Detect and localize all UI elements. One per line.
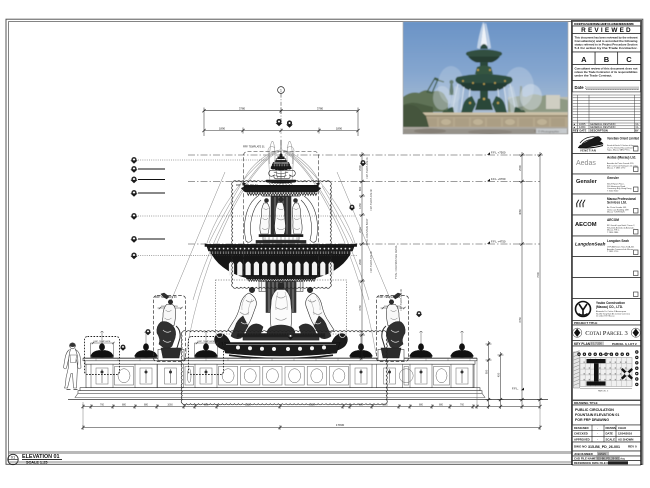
svg-text:880: 880 <box>439 403 444 406</box>
svg-text:3780: 3780 <box>239 107 246 111</box>
svg-text:FRP. TEMPLATE 03: FRP. TEMPLATE 03 <box>379 296 401 299</box>
svg-text:F.F.L +7500: F.F.L +7500 <box>491 150 506 154</box>
svg-text:DATE: DATE <box>580 128 587 132</box>
svg-text:-: - <box>597 432 598 436</box>
svg-text:880: 880 <box>204 403 209 406</box>
svg-text:PROJECT TITLE: PROJECT TITLE <box>574 321 597 325</box>
svg-text:VENETIAN: VENETIAN <box>580 149 596 153</box>
svg-text:F.F.L +6760: F.F.L +6760 <box>491 177 506 181</box>
svg-text:ELEVATION 01: ELEVATION 01 <box>22 454 60 460</box>
svg-text:CHAO: CHAO <box>618 426 627 430</box>
svg-text:12/04: 12/04 <box>579 125 586 129</box>
svg-text:COTAI PARCEL 3: COTAI PARCEL 3 <box>585 330 628 337</box>
svg-text:890: 890 <box>358 186 362 191</box>
svg-text:1890: 1890 <box>219 126 226 130</box>
svg-text:4750: 4750 <box>518 317 522 323</box>
svg-text:1250: 1250 <box>358 203 362 209</box>
svg-text:KEY PLAN: KEY PLAN <box>574 342 591 346</box>
svg-text:880: 880 <box>419 403 424 406</box>
svg-text:DO NOT SCALE DRAWING. VERIFY A: DO NOT SCALE DRAWING. VERIFY ALL DIMENSI… <box>574 22 634 26</box>
svg-text:TYPE. FOUNTAIN SEE DETAIL: TYPE. FOUNTAIN SEE DETAIL <box>395 244 398 279</box>
svg-text:2520: 2520 <box>309 403 315 406</box>
svg-text:PARCEL 3, LOT 2: PARCEL 3, LOT 2 <box>612 342 637 346</box>
svg-text:REV: REV <box>573 128 579 132</box>
svg-text:4060: 4060 <box>518 209 522 215</box>
svg-text:760: 760 <box>100 403 105 406</box>
svg-text:950: 950 <box>485 369 489 374</box>
svg-text:2520: 2520 <box>245 403 251 406</box>
svg-text:2590: 2590 <box>518 165 522 171</box>
svg-text:F.F.L +4750: F.F.L +4750 <box>491 239 506 243</box>
svg-text:AECOM: AECOM <box>575 222 597 228</box>
svg-text:Date :: Date : <box>575 85 587 90</box>
svg-text:PARCEL 3: PARCEL 3 <box>598 389 609 392</box>
svg-text:FRP. TEMPLATE 03: FRP. TEMPLATE 03 <box>400 289 403 311</box>
svg-text:A: A <box>581 55 587 64</box>
svg-text:F.F.L.: F.F.L. <box>512 386 519 390</box>
svg-text:315-B6_PD_26-001: 315-B6_PD_26-001 <box>588 445 620 449</box>
svg-text:FRP. TEMPLATE 02: FRP. TEMPLATE 02 <box>370 189 373 211</box>
svg-text:SCALE: SCALE <box>606 437 616 441</box>
svg-text:CL: CL <box>636 125 640 129</box>
svg-text:FRP. TEMPLATE 01: FRP. TEMPLATE 01 <box>366 157 369 179</box>
svg-text:S 1:7,500: S 1:7,500 <box>591 342 603 346</box>
svg-text:GENERAL REVISION: GENERAL REVISION <box>590 125 616 129</box>
svg-text:2990: 2990 <box>358 259 362 265</box>
svg-text:2300: 2300 <box>358 344 362 350</box>
svg-text:Langdon Seah: Langdon Seah <box>607 239 629 243</box>
svg-text:FRP. TEMPLATE 01: FRP. TEMPLATE 01 <box>243 146 265 149</box>
svg-text:3780: 3780 <box>317 107 324 111</box>
svg-text:DRAWN: DRAWN <box>606 426 617 430</box>
svg-text:© Photographie: © Photographie <box>538 129 559 133</box>
svg-text:DESCRIPTION: DESCRIPTION <box>590 128 608 132</box>
svg-text:DESIGNED: DESIGNED <box>574 426 589 430</box>
svg-text:17830: 17830 <box>336 423 345 427</box>
svg-text:BY: BY <box>635 128 639 132</box>
svg-text:FRP. TEMPLATE: FRP. TEMPLATE <box>198 340 215 343</box>
svg-text:Venetian Orient Limited: Venetian Orient Limited <box>607 137 639 141</box>
svg-text:880: 880 <box>122 403 127 406</box>
svg-text:880: 880 <box>144 403 149 406</box>
svg-text:12/04/2016: 12/04/2016 <box>618 432 632 436</box>
svg-text:CHECKED: CHECKED <box>574 432 588 436</box>
svg-text:FRP. TEMPLATE 02: FRP. TEMPLATE 02 <box>370 251 373 273</box>
svg-text:This document has been reviewe: This document has been reviewed by the r… <box>575 36 639 51</box>
svg-text:-: - <box>597 426 598 430</box>
svg-text:1060: 1060 <box>167 403 173 406</box>
svg-text:7500: 7500 <box>536 272 540 278</box>
svg-text:315-B6_PD_26-001.dwg: 315-B6_PD_26-001.dwg <box>597 456 626 460</box>
svg-text:SCALE 1:25: SCALE 1:25 <box>26 460 48 464</box>
svg-text:1060: 1060 <box>382 403 388 406</box>
svg-text:APPROVED: APPROVED <box>574 437 590 441</box>
svg-text:Aedas (Macau) Ltd.: Aedas (Macau) Ltd. <box>607 156 636 160</box>
svg-text:760: 760 <box>460 403 465 406</box>
svg-text:Aedas: Aedas <box>576 160 596 167</box>
svg-text:4750: 4750 <box>358 305 362 311</box>
svg-text:TYPE. FOUNTAIN BODY: TYPE. FOUNTAIN BODY <box>366 218 369 245</box>
svg-text:Gensler: Gensler <box>607 176 620 180</box>
svg-text:450: 450 <box>497 372 501 377</box>
svg-text:01: 01 <box>11 455 16 460</box>
svg-text:880: 880 <box>359 403 364 406</box>
svg-text:FRP. TEMPLATE: FRP. TEMPLATE <box>94 340 111 343</box>
svg-text:FRP. TEMPLATE 03: FRP. TEMPLATE 03 <box>155 296 177 299</box>
svg-text:31515: 31515 <box>598 452 606 456</box>
svg-text:LangdonSeah: LangdonSeah <box>575 242 606 247</box>
svg-text:JOB NUMBER: JOB NUMBER <box>574 452 593 456</box>
svg-text:AECOM: AECOM <box>607 218 619 222</box>
svg-text:-: - <box>597 437 598 441</box>
svg-text:C: C <box>626 55 632 64</box>
svg-text:2010: 2010 <box>358 227 362 233</box>
svg-text:REV 0: REV 0 <box>628 445 637 449</box>
svg-text:CAD FILE NAME: CAD FILE NAME <box>574 457 596 461</box>
svg-text:2590: 2590 <box>358 165 362 171</box>
svg-text:1: 1 <box>280 88 282 92</box>
svg-text:B: B <box>604 55 610 64</box>
svg-text:Services Ltd.: Services Ltd. <box>607 201 627 205</box>
svg-text:AS SHOWN: AS SHOWN <box>618 437 633 441</box>
svg-text:Gensler: Gensler <box>576 179 598 185</box>
svg-text:FRP. TEMPLATE 02: FRP. TEMPLATE 02 <box>236 184 258 187</box>
svg-text:DATE: DATE <box>606 432 614 436</box>
svg-text:(Macau) CO., LTD.: (Macau) CO., LTD. <box>596 305 623 309</box>
svg-text:DWG NO: DWG NO <box>574 445 587 449</box>
svg-text:DRAWING TITLE: DRAWING TITLE <box>574 401 598 405</box>
svg-text:1890: 1890 <box>336 126 343 130</box>
